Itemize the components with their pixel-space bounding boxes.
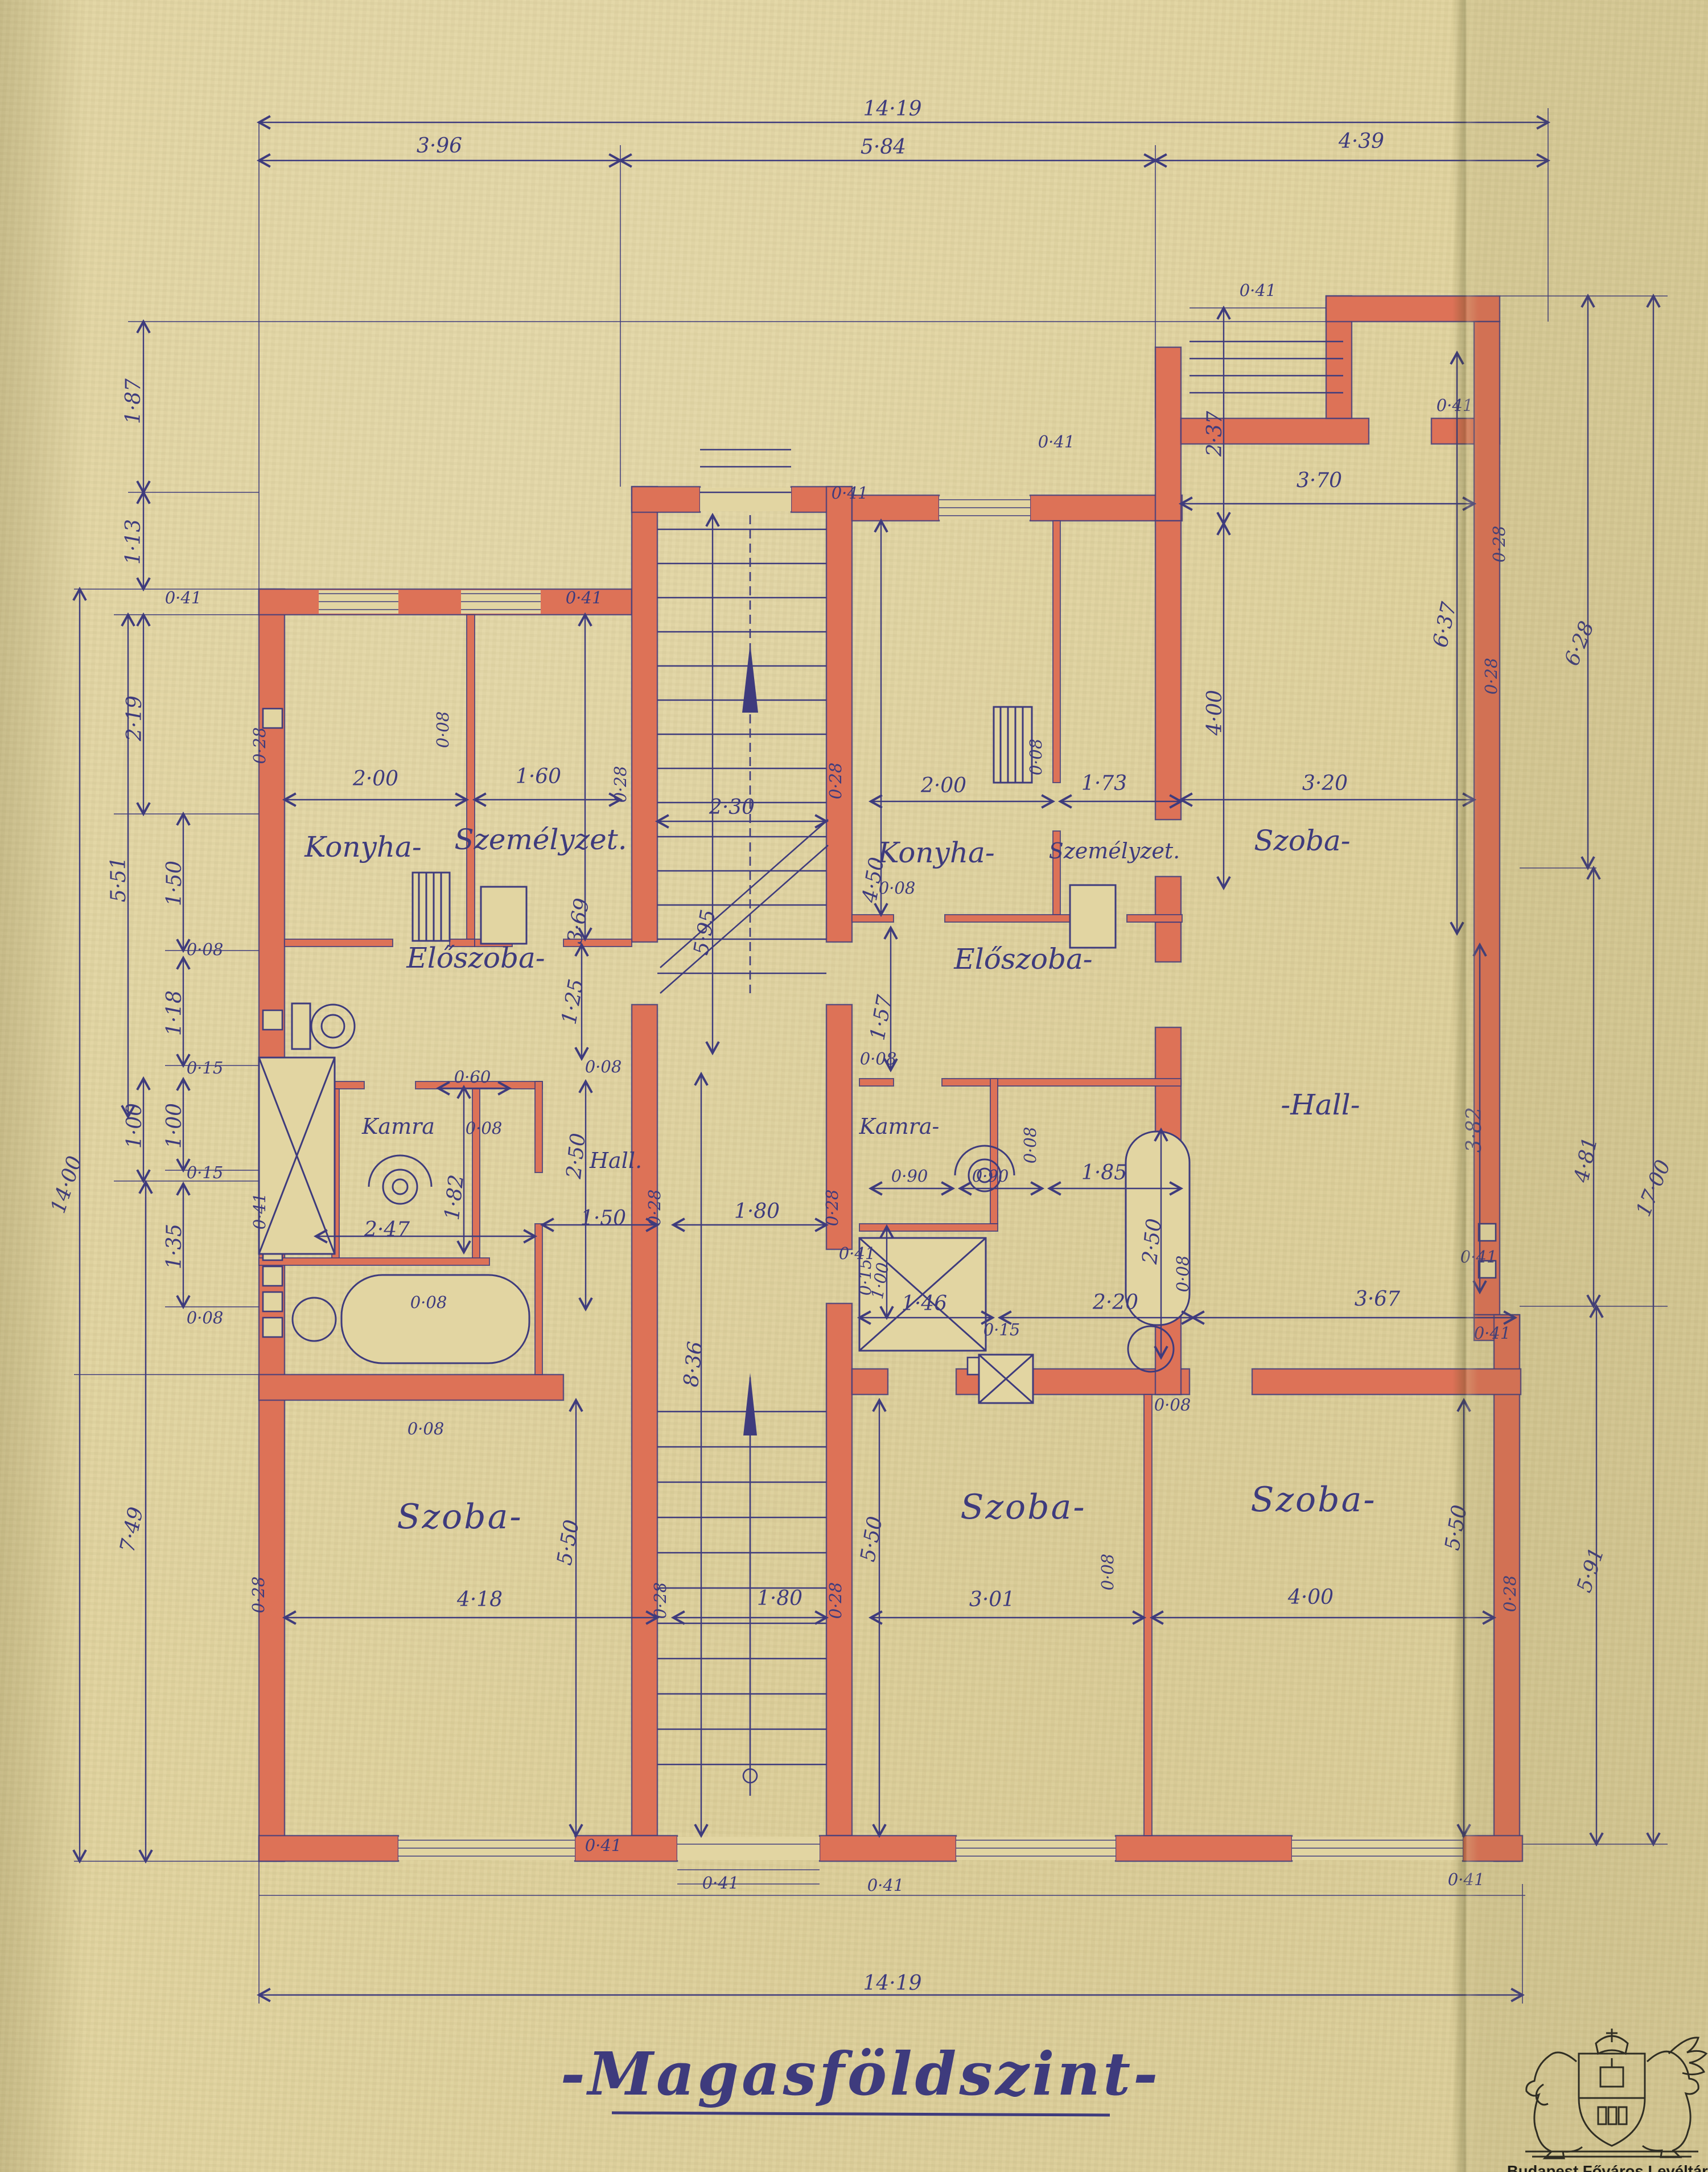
dim-label: 4·39 (1338, 130, 1384, 153)
dim-label: 0·28 (826, 1582, 845, 1619)
wall-vent (263, 1010, 282, 1030)
dim-label: 0·41 (1437, 396, 1474, 415)
up-arrow (742, 643, 758, 713)
dim-label: 2·30 (709, 796, 755, 819)
dim-label: 0·28 (822, 1190, 842, 1227)
dim-label: 2·00 (920, 774, 966, 797)
dim-label: 1·60 (516, 765, 561, 788)
dim-label: 2·00 (352, 767, 398, 791)
dim-label: 3·69 (563, 896, 594, 945)
dim-label: 2·37 (1203, 411, 1227, 457)
room-label: Személyzet. (454, 823, 627, 856)
dim-label: 14·19 (863, 1972, 921, 1995)
dim-label: 0·41 (566, 588, 603, 607)
dim-label: 0·41 (1474, 1323, 1511, 1343)
dim-label: 3·82 (1463, 1107, 1486, 1153)
dim-label: 0·28 (645, 1190, 664, 1227)
bathtub-left (341, 1275, 529, 1363)
dim-label: 0·90 (891, 1166, 928, 1186)
wc-left (293, 1298, 336, 1341)
dim-label: 0·41 (832, 483, 869, 503)
dim-label: 0·28 (1500, 1575, 1520, 1612)
window (461, 590, 541, 614)
title-underline (612, 2113, 1110, 2115)
room-label: Konyha- (304, 830, 421, 863)
floorplan-drawing: 14·193·965·844·391·871·130·412·195·511·5… (0, 0, 1708, 2172)
dim-label: 5·95 (690, 908, 721, 957)
dim-label: 3·70 (1297, 469, 1342, 492)
room-label: Előszoba- (406, 941, 545, 974)
top-entrance-steps (700, 450, 791, 511)
cupboard-left (481, 887, 526, 944)
dim-label: 1·57 (866, 993, 897, 1042)
dim-label: 3·96 (417, 134, 462, 158)
room-label: Kamra (361, 1114, 435, 1139)
dim-label: 0·41 (702, 1873, 739, 1893)
wall-vent (263, 1318, 282, 1337)
dim-label: 4·81 (1570, 1135, 1602, 1185)
dim-label: 0·15 (187, 1058, 224, 1077)
dim-label: 2·50 (562, 1132, 590, 1180)
dim-label: 0·08 (1020, 1127, 1040, 1164)
dim-label: 0·41 (1448, 1870, 1485, 1889)
toilet-left (292, 1003, 355, 1049)
window (1292, 1837, 1463, 1860)
room-label: Kamra- (859, 1114, 940, 1139)
dim-label: 4·18 (456, 1588, 503, 1611)
wall-vent (263, 709, 282, 728)
wall-vent (1479, 1224, 1496, 1241)
sink-left (369, 1155, 431, 1204)
dim-label: 0·15 (983, 1320, 1020, 1339)
dim-label: 5·50 (857, 1515, 887, 1564)
dim-label: 0·28 (1489, 526, 1509, 563)
dim-label: 0·28 (1481, 658, 1501, 695)
dim-label: 1·18 (163, 990, 186, 1036)
title-block: -Magasföldszint- (561, 2039, 1161, 2115)
room-label: -Hall- (1281, 1088, 1360, 1121)
dim-label: 0·28 (250, 727, 269, 764)
dim-label: 1·25 (558, 977, 588, 1026)
window (956, 1837, 1116, 1860)
terrace-steps (1190, 342, 1343, 393)
dim-label: 0·41 (165, 588, 202, 607)
upper-flight-treads (657, 529, 826, 973)
dim-label: 3·01 (969, 1588, 1015, 1611)
shaft-small-right (979, 1355, 1033, 1403)
dim-label: 0·90 (972, 1166, 1009, 1186)
room-label: Szoba- (1254, 824, 1350, 857)
dim-label: 14·19 (863, 97, 921, 121)
dim-label: 0·08 (408, 1419, 445, 1438)
dim-label: 0·08 (1173, 1256, 1192, 1293)
dim-label: 0·08 (1154, 1395, 1191, 1414)
dim-label: 0·08 (1098, 1554, 1117, 1591)
dim-label: 0·08 (1026, 739, 1046, 776)
dim-label: 1·35 (163, 1224, 186, 1269)
room-label: Konyha- (877, 836, 994, 869)
dim-label: 0·28 (651, 1582, 670, 1619)
dim-label: 2·47 (364, 1218, 410, 1241)
dim-label: 6·28 (1560, 618, 1599, 669)
dim-label: 1·00 (163, 1103, 186, 1149)
dim-label: 5·51 (107, 857, 130, 902)
dim-label: 5·50 (1441, 1503, 1472, 1552)
dim-label: 0·41 (1460, 1247, 1497, 1266)
dim-label: 0·28 (611, 766, 630, 803)
room-label: Szoba- (397, 1497, 522, 1537)
dim-label: 0·08 (187, 940, 224, 959)
dim-label: 7·49 (116, 1505, 148, 1554)
dim-label: 6·37 (1429, 600, 1461, 649)
staircase (657, 342, 1343, 1796)
dim-label: 1·46 (902, 1292, 947, 1315)
dim-label: 5·84 (861, 135, 906, 159)
dim-label: 1·87 (122, 379, 145, 424)
dim-label: 0·08 (585, 1057, 622, 1076)
wall-vent (263, 1292, 282, 1311)
coat-of-arms-icon (1525, 2029, 1706, 2158)
dim-label: 2·20 (1092, 1291, 1138, 1314)
window (398, 1837, 575, 1860)
break-line (660, 845, 828, 993)
dim-label: 0·28 (249, 1577, 268, 1614)
dim-label: 4·00 (1287, 1586, 1334, 1609)
dim-label: 17·00 (1632, 1157, 1676, 1220)
dim-label: 1·50 (581, 1207, 626, 1230)
dim-label: 3·20 (1302, 772, 1348, 795)
dim-label: 0·08 (860, 1049, 897, 1068)
walls (259, 296, 1522, 1861)
dim-label: 2·50 (1138, 1217, 1166, 1266)
scanned-floorplan-page: { "colors":{"paper":"#e2d5a2","paper2":"… (0, 0, 1708, 2172)
dim-label: 0·08 (410, 1293, 447, 1312)
dim-label: 2·19 (123, 696, 146, 742)
archive-stamp: Budapest Főváros Levéltára (1507, 2029, 1708, 2172)
dim-label: 1·80 (757, 1587, 802, 1610)
stove-left (413, 873, 450, 941)
dim-label: 8·36 (680, 1340, 707, 1388)
dim-label: 0·15 (187, 1163, 224, 1182)
window (319, 590, 398, 614)
dim-label: 0·41 (867, 1875, 904, 1895)
dim-label: 1·82 (441, 1174, 468, 1221)
light-shaft-left (259, 1058, 335, 1254)
wall-vent (263, 1266, 282, 1286)
dim-label: 1·85 (1081, 1161, 1127, 1184)
room-label: Hall. (589, 1148, 642, 1173)
dim-label: 5·50 (553, 1518, 584, 1567)
dim-label: 0·41 (839, 1244, 876, 1263)
dim-label: 0·60 (454, 1067, 491, 1087)
entrance-door (677, 1837, 820, 1884)
dim-label: 14·00 (47, 1153, 87, 1216)
dim-label: 0·08 (187, 1308, 224, 1327)
dim-label: 1·00 (123, 1103, 146, 1149)
up-arrow (743, 1373, 757, 1435)
dim-label: 4·00 (1203, 690, 1227, 736)
dim-label: 0·08 (433, 711, 452, 748)
dim-label: 1·80 (734, 1200, 780, 1223)
dim-label: 0·08 (879, 878, 916, 898)
dim-label: 0·41 (250, 1193, 269, 1230)
break-line (660, 820, 828, 968)
dim-label: 0·41 (1240, 281, 1277, 300)
room-label: Előszoba- (953, 943, 1092, 976)
window (939, 496, 1030, 520)
labels: 14·193·965·844·391·871·130·412·195·511·5… (47, 97, 1676, 1995)
dim-label: 0·08 (466, 1118, 503, 1138)
dim-label: 0·41 (1038, 432, 1075, 451)
dim-label: 1·73 (1081, 772, 1127, 795)
room-label: Személyzet. (1049, 838, 1180, 863)
dim-label: 1·13 (122, 519, 145, 565)
dim-label: 1·50 (163, 861, 186, 906)
room-label: Szoba- (960, 1487, 1086, 1527)
dim-label: 3·67 (1355, 1287, 1400, 1311)
archive-name: Budapest Főváros Levéltára (1507, 2162, 1708, 2172)
cupboard-right (1070, 885, 1116, 948)
dim-label: 0·41 (585, 1836, 622, 1855)
room-label: Szoba- (1250, 1480, 1376, 1520)
sheet-title: -Magasföldszint- (561, 2039, 1161, 2109)
dim-label: 0·28 (826, 763, 845, 800)
dim-label: 5·91 (1573, 1545, 1609, 1595)
